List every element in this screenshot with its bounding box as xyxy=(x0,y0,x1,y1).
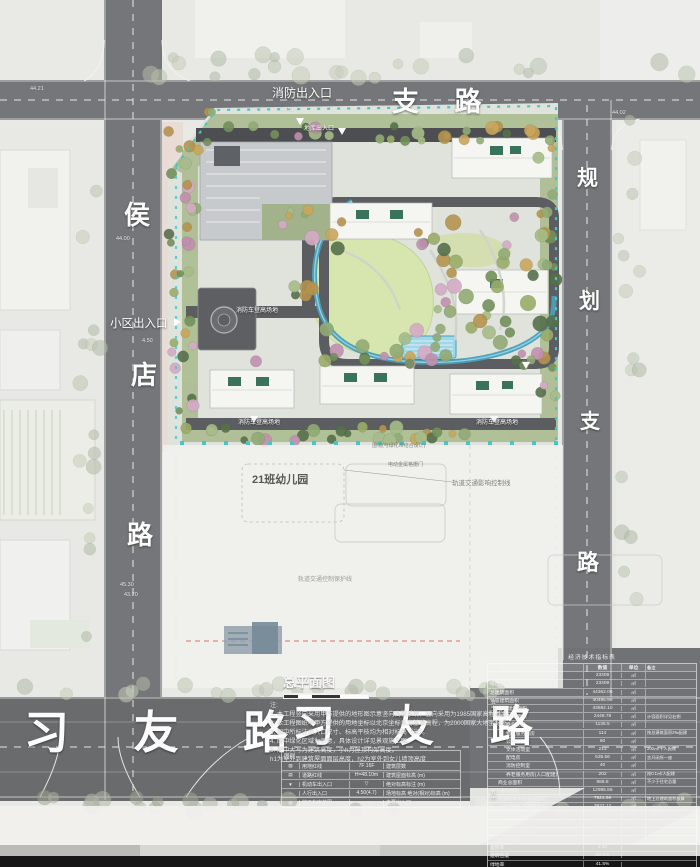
indicator-cell: 23309 xyxy=(584,673,622,678)
tree xyxy=(185,316,196,327)
indicator-row: 容积率2.20 xyxy=(488,844,696,852)
tree xyxy=(418,137,426,145)
tree xyxy=(84,543,96,555)
indicator-cell: ㎡ xyxy=(622,762,646,769)
tree xyxy=(303,205,314,216)
indicator-row: 架空层面积1474.06㎡ xyxy=(488,836,696,844)
boundary-dot xyxy=(290,441,294,445)
tree xyxy=(337,217,346,226)
tree xyxy=(400,136,410,146)
indicator-cell: 1474.06 xyxy=(584,837,622,842)
tree xyxy=(81,631,91,641)
tree xyxy=(493,335,508,350)
legend-cell: 绝对标高标注 (m) xyxy=(384,781,460,788)
legend-cell: ▨ xyxy=(282,800,300,806)
indicator-cell: ㎡ xyxy=(622,820,646,827)
tree xyxy=(528,270,539,281)
tree xyxy=(142,66,159,83)
legend-row: ▤道路红线H=48.10m建筑屋面标高 (m) xyxy=(282,771,460,780)
legend-cell: ∙∙∙ xyxy=(282,791,300,796)
tree xyxy=(320,322,334,336)
tree xyxy=(331,242,345,256)
indicator-cell: 计容建筑面积 xyxy=(488,697,584,704)
tree xyxy=(176,145,183,152)
building-garage-ramp xyxy=(198,288,256,350)
boundary-dot xyxy=(268,441,272,445)
indicator-cell: 114 xyxy=(584,731,622,736)
indicator-cell: 200㎡/千人配建 xyxy=(646,746,696,752)
tree xyxy=(500,316,511,327)
indicator-cell: ㎡ xyxy=(622,811,646,818)
dimension-label: 44.02 xyxy=(612,110,626,116)
indicator-cell: ㎡ xyxy=(622,836,646,843)
legend-table: 图例 ▧用地红线7F 16F建筑层数▤道路红线H=48.10m建筑屋面标高 (m… xyxy=(281,750,461,808)
tree xyxy=(178,678,193,693)
boundary-dot xyxy=(554,441,558,445)
tree xyxy=(413,59,429,75)
tree xyxy=(520,259,533,272)
tree xyxy=(305,230,320,245)
indicator-cell: 可出让用地面积 xyxy=(488,680,584,687)
tree xyxy=(628,151,642,165)
tree xyxy=(203,138,211,146)
tree xyxy=(542,260,552,270)
legend-cell: 用地红线 xyxy=(300,763,350,770)
tree xyxy=(319,354,332,367)
road-name-left-3: 路 xyxy=(127,515,153,552)
indicator-row: 可出让用地面积23309㎡ xyxy=(488,680,696,688)
indicator-cell: 40495.99 xyxy=(584,698,622,703)
tree xyxy=(379,425,387,433)
indicator-cell: 287.78 xyxy=(584,829,622,834)
tree xyxy=(410,323,424,337)
tree xyxy=(210,72,220,82)
legend-cell: 7F 16F xyxy=(350,763,384,769)
indicator-cell: 988.8 xyxy=(584,780,622,785)
tree xyxy=(326,228,338,240)
road-name-right-1: 规 xyxy=(577,162,598,192)
tree xyxy=(270,130,279,139)
indicator-row: 地下建筑面积12995.56㎡ xyxy=(488,787,696,795)
indicator-cell: 43582.10 xyxy=(584,706,622,711)
tree xyxy=(336,426,347,437)
legend-cell: 地下车库范围 xyxy=(300,799,350,806)
indicator-row: 设备用房面积1452.72㎡ xyxy=(488,820,696,828)
indicator-cell: 消防控制室 xyxy=(488,762,584,769)
tree xyxy=(76,230,90,244)
boundary-dot xyxy=(202,441,206,445)
indicator-cell: 20.0% xyxy=(584,853,622,858)
dimension-label: 45.30 xyxy=(120,582,134,588)
fire-lane-label-3: 消防车登高场地 xyxy=(476,420,518,427)
road-name-right-4: 路 xyxy=(577,545,599,577)
road-name-left-1: 侯 xyxy=(124,195,150,232)
tree xyxy=(542,207,553,218)
garage-entrance-label: 地库出入口 xyxy=(304,126,334,133)
indicator-cell: 门卫及其他面积 xyxy=(488,828,584,835)
tree xyxy=(651,53,669,71)
legend-cell: ▼ xyxy=(282,782,300,787)
indicator-cell: 计容面积详见右侧 xyxy=(646,714,696,720)
tree xyxy=(435,283,447,295)
indicator-cell: 容积率 xyxy=(488,844,584,851)
legend-row: ▧用地红线7F 16F建筑层数 xyxy=(282,762,460,771)
indicator-cell: 总建筑面积 xyxy=(488,689,584,696)
tree xyxy=(416,239,427,250)
tree xyxy=(459,289,474,304)
tree xyxy=(223,121,234,132)
indicator-cell: 60 xyxy=(584,739,622,744)
tree xyxy=(633,265,645,277)
tree xyxy=(444,305,456,317)
legend-cell: ⊏ ⊐ xyxy=(350,800,384,806)
legend-cell: 道路红线 xyxy=(300,772,350,779)
indicator-cell: 设备用房面积 xyxy=(488,820,584,827)
indicator-cell: 3937.12 xyxy=(584,804,622,809)
indicator-cell: ㎡ xyxy=(622,779,646,786)
tree xyxy=(249,122,259,132)
tree xyxy=(405,359,415,369)
indicator-cell: ㎡ xyxy=(622,730,646,737)
tree xyxy=(502,129,511,138)
indicator-row: 文体活动室213㎡200㎡/千人配建 xyxy=(488,746,696,754)
fire-lane-label-1: 消防车登高场地 xyxy=(236,308,278,315)
tree xyxy=(438,130,451,143)
fence-label: 围墙(与绿化带结合设计) xyxy=(372,442,425,449)
header-cell: 单位 xyxy=(622,664,646,671)
ghost-building-render xyxy=(224,622,282,654)
road-name-right-2: 划 xyxy=(579,285,600,315)
indicator-cell: ㎡ xyxy=(622,828,646,835)
tree xyxy=(211,51,227,67)
tree xyxy=(540,381,548,389)
tree xyxy=(294,132,302,140)
tree xyxy=(255,47,271,63)
tree xyxy=(520,295,536,311)
indicator-row: 计容建筑面积40495.99㎡ xyxy=(488,697,696,705)
boundary-dot xyxy=(312,441,316,445)
indicator-row: 非机动车库面积748.4㎡ xyxy=(488,811,696,819)
legend-cell: 建筑层数 xyxy=(384,763,460,770)
tree xyxy=(505,328,515,338)
tree xyxy=(292,67,310,85)
tree xyxy=(177,270,184,277)
tree xyxy=(482,326,495,339)
legend-cell: 场地标高 绝对(相对)标高 (m) xyxy=(384,790,460,797)
tree xyxy=(627,353,639,365)
indicator-cell: ㎡ xyxy=(622,697,646,704)
dimension-label: 44.51 xyxy=(280,107,294,113)
building-commercial xyxy=(200,142,332,240)
tree xyxy=(152,796,163,807)
tree xyxy=(445,215,461,231)
tree xyxy=(432,427,442,437)
community-entrance-label: 小区出入口 xyxy=(110,315,168,331)
tree xyxy=(435,324,445,334)
tree xyxy=(627,188,639,200)
tree xyxy=(86,459,101,474)
tree xyxy=(459,134,470,145)
boundary-dot xyxy=(444,441,448,445)
indicator-cell: 配电房 xyxy=(488,754,584,761)
tree xyxy=(473,314,487,328)
tree xyxy=(449,430,456,437)
tree xyxy=(189,342,198,351)
indicator-cell: 养老服务用房(人口配建) xyxy=(488,771,584,778)
indicators-table: 经济技术指标表 项目数值单位备注规划用地面积23309㎡可出让用地面积23309… xyxy=(487,652,697,867)
gate-label: 电动金属格栅门 xyxy=(388,461,423,468)
indicator-cell: ㎡ xyxy=(622,689,646,696)
tree xyxy=(278,220,287,229)
tree xyxy=(307,424,320,437)
tree xyxy=(616,471,628,483)
tree xyxy=(289,281,301,293)
indicator-cell: ㎡ xyxy=(622,795,646,802)
tree xyxy=(90,185,102,197)
tree xyxy=(180,157,192,169)
rail-protect-line-label: 轨道交通控制保护线 xyxy=(298,574,352,583)
tree xyxy=(17,679,33,695)
tree xyxy=(425,353,438,366)
indicator-cell: 7924.96 xyxy=(584,796,622,801)
tree xyxy=(437,243,450,256)
tree xyxy=(630,592,644,606)
tree xyxy=(510,213,519,222)
indicator-row: 商业配套1135.5㎡ xyxy=(488,721,696,729)
indicator-cell: 住宅建筑面积 xyxy=(488,705,584,712)
tree xyxy=(618,566,630,578)
tree xyxy=(482,299,494,311)
indicator-cell: 12995.56 xyxy=(584,788,622,793)
indicator-cell: 地下建筑面积 xyxy=(488,787,584,794)
tree xyxy=(546,315,559,328)
indicator-row: 消防控制室40㎡ xyxy=(488,762,696,770)
boundary-dot xyxy=(466,441,470,445)
indicator-cell: 建筑密度 xyxy=(488,852,584,859)
tree xyxy=(498,248,510,260)
indicator-cell: ㎡ xyxy=(622,787,646,794)
indicators-title: 经济技术指标表 xyxy=(487,652,697,663)
road-left xyxy=(104,0,162,800)
tree xyxy=(181,423,192,434)
header-cell: 数值 xyxy=(584,664,622,671)
legend-cell: ▧ xyxy=(282,763,300,769)
tree xyxy=(287,48,304,65)
indicator-cell: 规划用地面积 xyxy=(488,672,584,679)
tree xyxy=(533,316,549,332)
tree xyxy=(545,135,555,145)
tree xyxy=(375,134,384,143)
tree xyxy=(459,48,474,63)
indicator-cell: 商业总面积 xyxy=(488,779,584,786)
tree xyxy=(330,353,338,361)
indicator-cell: ㎡ xyxy=(622,705,646,712)
indicator-cell: ㎡ xyxy=(622,771,646,778)
tree xyxy=(250,356,261,367)
legend-title: 图例 xyxy=(282,751,460,762)
indicator-cell: 23309 xyxy=(584,681,622,686)
indicator-cell: 535.56 xyxy=(584,755,622,760)
tree xyxy=(194,145,204,155)
indicator-cell: 40 xyxy=(584,763,622,768)
plan-title: 总平面图 xyxy=(283,672,335,695)
road-name-right-3: 支 xyxy=(580,405,600,434)
indicator-cell: 商业配套 xyxy=(488,721,584,728)
tree xyxy=(535,229,548,242)
indicator-cell: 按0.1㎡/人配建 xyxy=(646,771,696,777)
legend-cell: 4.50(4.7) xyxy=(350,790,384,796)
tree xyxy=(390,421,404,435)
indicator-cell: 文体活动室 xyxy=(488,746,584,753)
tree xyxy=(285,212,292,219)
tree xyxy=(186,203,196,213)
tree xyxy=(181,329,190,338)
legend-cell: ▽ xyxy=(350,781,384,787)
indicator-cell: 1135.5 xyxy=(584,722,622,727)
tree xyxy=(182,222,191,231)
legend-row: ∙∙∙人行出入口4.50(4.7)场地标高 绝对(相对)标高 (m) xyxy=(282,789,460,798)
scale-bar xyxy=(283,694,369,699)
fire-exit-label: 消防出入口 xyxy=(272,84,332,101)
tree xyxy=(548,144,555,151)
tree xyxy=(387,135,395,143)
tree xyxy=(206,424,218,436)
tree xyxy=(447,279,462,294)
tree xyxy=(459,428,471,440)
indicator-cell: ㎡ xyxy=(622,754,646,761)
indicator-row: 人防机动车停车库面积3937.12㎡ xyxy=(488,803,696,811)
tree xyxy=(164,126,174,136)
legend-cell: H=48.10m xyxy=(350,772,384,778)
indicator-cell: ㎡ xyxy=(622,738,646,745)
indicator-cell: 2448.78 xyxy=(584,714,622,719)
indicator-cell: ㎡ xyxy=(622,803,646,810)
tree xyxy=(172,56,186,70)
tree xyxy=(336,66,348,78)
tree xyxy=(624,115,635,126)
tree xyxy=(170,339,179,348)
indicator-row: 物业服务用房114㎡按总建筑面积2‰配建 xyxy=(488,730,696,738)
tree xyxy=(678,66,695,83)
legend-cell: 主要出入口 xyxy=(384,799,460,806)
indicator-cell: ㎡ xyxy=(622,721,646,728)
indicator-row: 普通机动车停车库面积7924.96㎡地上总建筑面积核算 xyxy=(488,795,696,803)
tree xyxy=(73,454,86,467)
dimension-label: 43.20 xyxy=(124,592,138,598)
boundary-dot xyxy=(246,441,250,445)
tree xyxy=(351,70,367,86)
tree xyxy=(88,447,101,460)
indicator-cell: 人防机动车停车库面积 xyxy=(488,803,584,810)
indicator-cell: ㎡ xyxy=(622,680,646,687)
indicator-cell: 748.4 xyxy=(584,812,622,817)
tree xyxy=(414,228,423,237)
indicator-cell: ㎡ xyxy=(622,713,646,720)
tree xyxy=(357,422,367,432)
tree xyxy=(84,533,95,544)
tree xyxy=(523,68,533,78)
tree xyxy=(447,268,457,278)
tree xyxy=(48,792,60,804)
kindergarten-label: 21班幼儿园 xyxy=(252,471,308,487)
indicators-header: 项目数值单位备注 xyxy=(488,664,696,672)
legend-cell: 机动车出入口 xyxy=(300,781,350,788)
boundary-dot xyxy=(488,441,492,445)
indicator-row: 规划用地面积23309㎡ xyxy=(488,672,696,680)
dimension-label: 44.00 xyxy=(116,236,130,242)
tree xyxy=(356,339,370,353)
indicator-cell: 44362.06 xyxy=(584,690,622,695)
tree xyxy=(182,237,191,246)
boundary-dot xyxy=(334,441,338,445)
indicator-cell: ㎡ xyxy=(622,746,646,753)
fire-lane-label-2: 消防车登高场地 xyxy=(238,420,280,427)
tree xyxy=(88,325,99,336)
indicator-row: 住宅建筑面积43582.10㎡ xyxy=(488,705,696,713)
indicator-cell: 2.20 xyxy=(584,845,622,850)
indicator-row: 门卫及其他面积287.78㎡ xyxy=(488,828,696,836)
tree xyxy=(511,355,521,365)
indicator-cell: 配套建筑面积 xyxy=(488,713,584,720)
indicator-cell: 202 xyxy=(584,772,622,777)
boundary-dot xyxy=(224,441,228,445)
indicator-row: 公厕60㎡ xyxy=(488,738,696,746)
tree xyxy=(476,137,484,145)
tree xyxy=(249,68,261,80)
tree xyxy=(449,255,463,269)
boundary-dot xyxy=(532,441,536,445)
indicator-cell: 不少于住宅总量 xyxy=(646,779,696,785)
indicator-row: 商业总面积988.8㎡不少于住宅总量 xyxy=(488,779,696,787)
tree xyxy=(491,280,504,293)
dimension-label: 44.63 xyxy=(448,110,462,116)
tree xyxy=(613,233,624,244)
tree xyxy=(221,423,231,433)
tree xyxy=(365,680,377,692)
dimension-label: 44.21 xyxy=(30,86,44,92)
tree xyxy=(390,344,404,358)
tree xyxy=(183,180,192,189)
indicator-row: 养老服务用房(人口配建)202㎡按0.1㎡/人配建 xyxy=(488,770,696,778)
tree xyxy=(619,284,633,298)
building xyxy=(210,370,294,408)
indicator-cell: 1452.72 xyxy=(584,821,622,826)
site-plan-canvas: 消防出入口 支 路 侯 店 路 小区出入口 规 划 支 路 习 友 路 习 友 … xyxy=(0,0,700,867)
indicator-cell: 绿地率 xyxy=(488,861,584,867)
tree xyxy=(92,340,108,356)
indicator-cell: 非机动车库面积 xyxy=(488,811,584,818)
tree xyxy=(89,430,99,440)
boundary-dot xyxy=(356,441,360,445)
tree xyxy=(184,267,194,277)
tree xyxy=(390,122,398,130)
tree xyxy=(524,125,536,137)
tree xyxy=(168,348,177,357)
indicator-cell: 架空层面积 xyxy=(488,836,584,843)
indicator-cell: 213 xyxy=(584,747,622,752)
legend-cell: 建筑屋面标高 (m) xyxy=(384,772,460,779)
tree xyxy=(393,59,403,69)
header-cell: 项目 xyxy=(488,664,584,671)
tree xyxy=(369,72,381,84)
legend-row: ▼机动车出入口▽绝对标高标注 (m) xyxy=(282,780,460,789)
indicator-cell: 物业服务用房 xyxy=(488,730,584,737)
tree xyxy=(177,351,188,362)
indicator-cell: 普通机动车停车库面积 xyxy=(488,795,584,802)
tree xyxy=(624,530,637,543)
rail-control-line-label: 轨道交通影响控制线 xyxy=(452,477,511,487)
tree xyxy=(462,127,470,135)
